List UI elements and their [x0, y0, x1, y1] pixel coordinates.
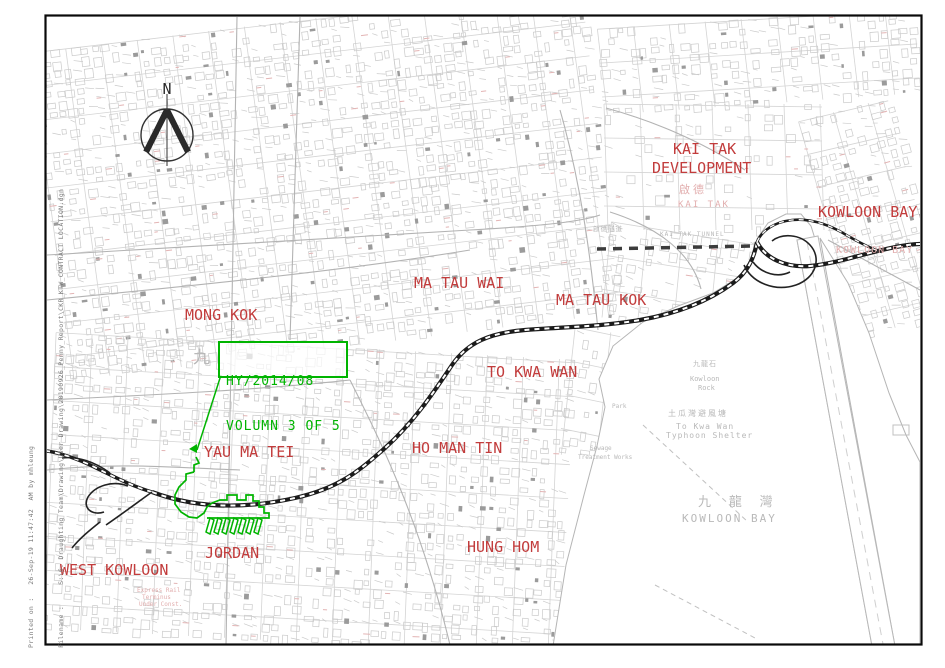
north-arrow: N [120, 76, 216, 180]
volume-label: VOLUMN 3 OF 5 [226, 419, 346, 434]
contract-title-box: HY/2014/08 VOLUMN 3 OF 5 [218, 341, 348, 378]
map-canvas: MONG KOKMA TAU WAIMA TAU KOKKAI TAKDEVEL… [0, 0, 945, 668]
plot-info-printed: Printed on : 26-Sep-19 11:47:42 AM by mh… [26, 8, 36, 648]
plot-info-filename: Filename : S:\6. Draughting Team\Drawing… [56, 8, 66, 648]
plot-info: Printed on : 26-Sep-19 11:47:42 AM by mh… [6, 8, 86, 648]
contract-number: HY/2014/08 [226, 374, 346, 389]
